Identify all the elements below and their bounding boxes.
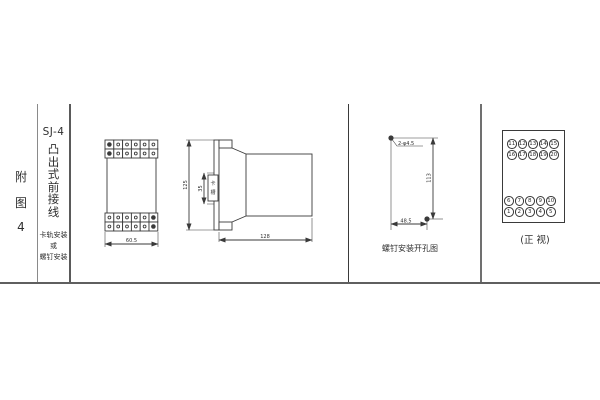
terminal-1: 1	[504, 207, 514, 217]
slot-dimension-label: 35	[198, 185, 204, 191]
terminal-layout-drawing: 11 12 13 14 15 16 17 18 19 20 6 7 8 9 10…	[500, 128, 570, 250]
holes-callout-label: 2-φ4.5	[398, 141, 414, 147]
drill-template-drawing: 2-φ4.5 113 48.5	[372, 130, 472, 234]
type-char: 式	[48, 169, 60, 181]
table-bottom-rule	[0, 282, 600, 284]
terminal-17: 17	[518, 150, 528, 160]
terminal-row-16-20: 16 17 18 19 20	[507, 150, 559, 160]
terminal-6: 6	[504, 196, 514, 206]
side-view-drawing: 125 35 卡 槽 128	[183, 128, 325, 250]
terminal-12: 12	[518, 139, 528, 149]
terminal-4: 4	[536, 207, 546, 217]
terminal-7: 7	[515, 196, 525, 206]
slot-label-char: 卡	[210, 180, 215, 187]
terminal-10: 10	[546, 196, 556, 206]
note-line: 螺钉安装	[37, 252, 70, 263]
rail-slot-outline	[208, 175, 218, 201]
table-divider-4	[480, 104, 482, 283]
terminal-14: 14	[539, 139, 549, 149]
terminal-row-11-15: 11 12 13 14 15	[507, 139, 559, 149]
terminal-11: 11	[507, 139, 517, 149]
relay-body-outline	[107, 158, 156, 213]
terminal-5: 5	[546, 207, 556, 217]
wiring-type-label: 凸 出 式 前 接 线	[37, 144, 70, 218]
type-char: 线	[48, 207, 60, 219]
terminal-9: 9	[536, 196, 546, 206]
mounting-note: 卡轨安装 或 螺钉安装	[37, 230, 70, 263]
slot-label-char: 槽	[210, 189, 215, 196]
note-line: 或	[37, 241, 70, 252]
hole-spacing-vertical-label: 113	[427, 173, 433, 183]
hole-spacing-horizontal-label: 48.5	[400, 219, 411, 225]
figure-char: 4	[17, 220, 25, 234]
width-dimension-label: 60.5	[126, 238, 137, 244]
terminal-20: 20	[549, 150, 559, 160]
terminal-3: 3	[525, 207, 535, 217]
type-char: 接	[48, 194, 60, 206]
terminal-13: 13	[528, 139, 538, 149]
model-label: SJ-4	[37, 126, 70, 138]
figure-char: 附	[15, 168, 27, 185]
terminal-16: 16	[507, 150, 517, 160]
relay-case-outline	[246, 154, 312, 216]
figure-number-label: 附 图 4	[8, 168, 34, 234]
figure-char: 图	[15, 194, 27, 211]
terminal-view-caption: (正 视)	[500, 232, 570, 246]
terminal-15: 15	[549, 139, 559, 149]
front-view-drawing: 60.5	[100, 136, 164, 250]
note-line: 卡轨安装	[37, 230, 70, 241]
height-dimension-label: 125	[183, 180, 189, 190]
terminal-18: 18	[528, 150, 538, 160]
terminal-2: 2	[515, 207, 525, 217]
figure-page: 附 图 4 SJ-4 凸 出 式 前 接 线 卡轨安装 或 螺钉安装	[0, 0, 600, 400]
type-char: 凸	[48, 144, 60, 156]
drill-template-caption: 螺钉安装开孔图	[372, 244, 448, 254]
terminal-19: 19	[539, 150, 549, 160]
depth-dimension-label: 128	[260, 234, 270, 240]
table-divider-3	[348, 104, 349, 283]
terminal-row-6-10: 6 7 8 9 10	[504, 196, 556, 206]
terminal-8: 8	[525, 196, 535, 206]
terminal-row-1-5: 1 2 3 4 5	[504, 207, 556, 217]
title-column: SJ-4 凸 出 式 前 接 线 卡轨安装 或 螺钉安装	[37, 126, 70, 263]
